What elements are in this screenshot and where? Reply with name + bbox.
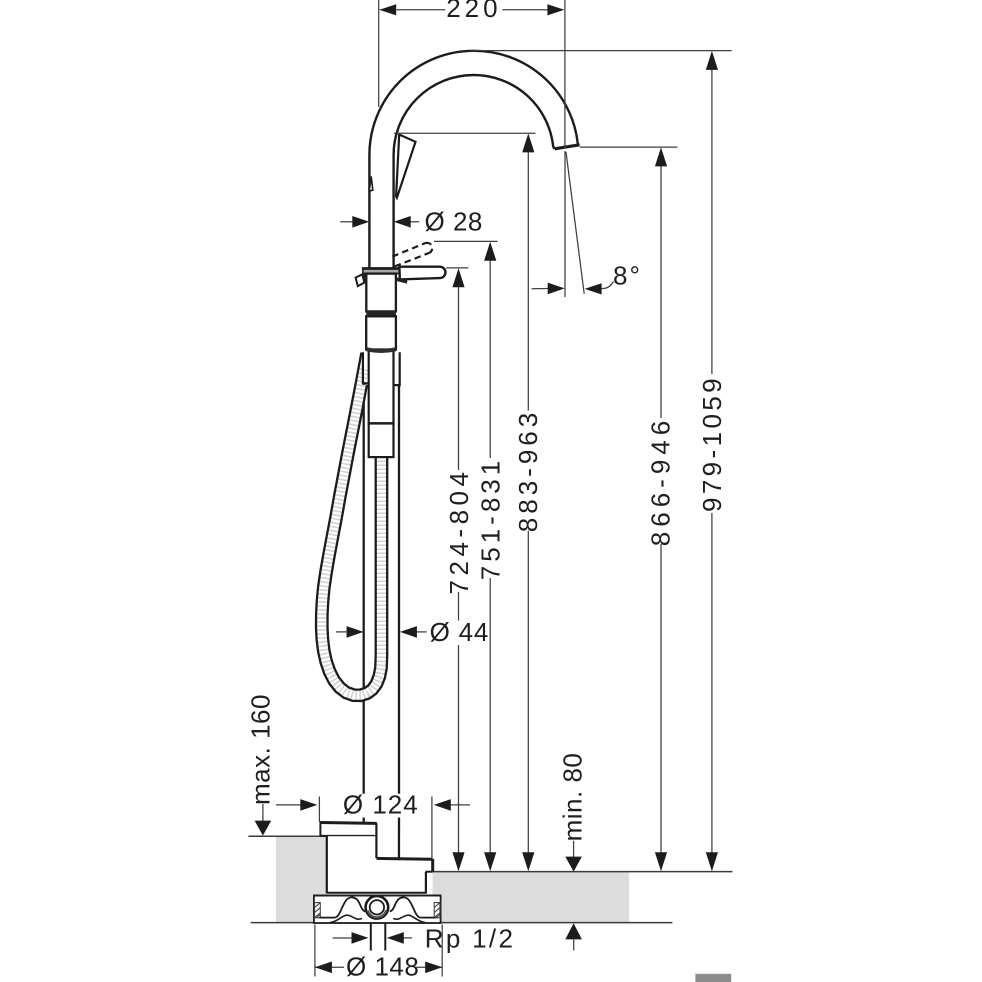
svg-text:Ø 124: Ø 124 xyxy=(343,790,419,820)
svg-text:Ø 44: Ø 44 xyxy=(430,617,490,647)
svg-text:866-946: 866-946 xyxy=(646,416,676,546)
svg-text:751-831: 751-831 xyxy=(475,457,505,580)
svg-text:883-963: 883-963 xyxy=(513,409,543,532)
svg-text:max. 160: max. 160 xyxy=(246,694,276,805)
svg-text:979-1059: 979-1059 xyxy=(697,375,727,512)
svg-text:Ø 148: Ø 148 xyxy=(346,951,419,981)
svg-text:Ø 28: Ø 28 xyxy=(425,207,483,237)
svg-text:724-804: 724-804 xyxy=(444,468,474,595)
svg-text:Rp 1/2: Rp 1/2 xyxy=(425,923,515,953)
svg-text:220: 220 xyxy=(446,0,501,23)
svg-text:8°: 8° xyxy=(613,261,642,291)
svg-text:min. 80: min. 80 xyxy=(558,753,588,842)
